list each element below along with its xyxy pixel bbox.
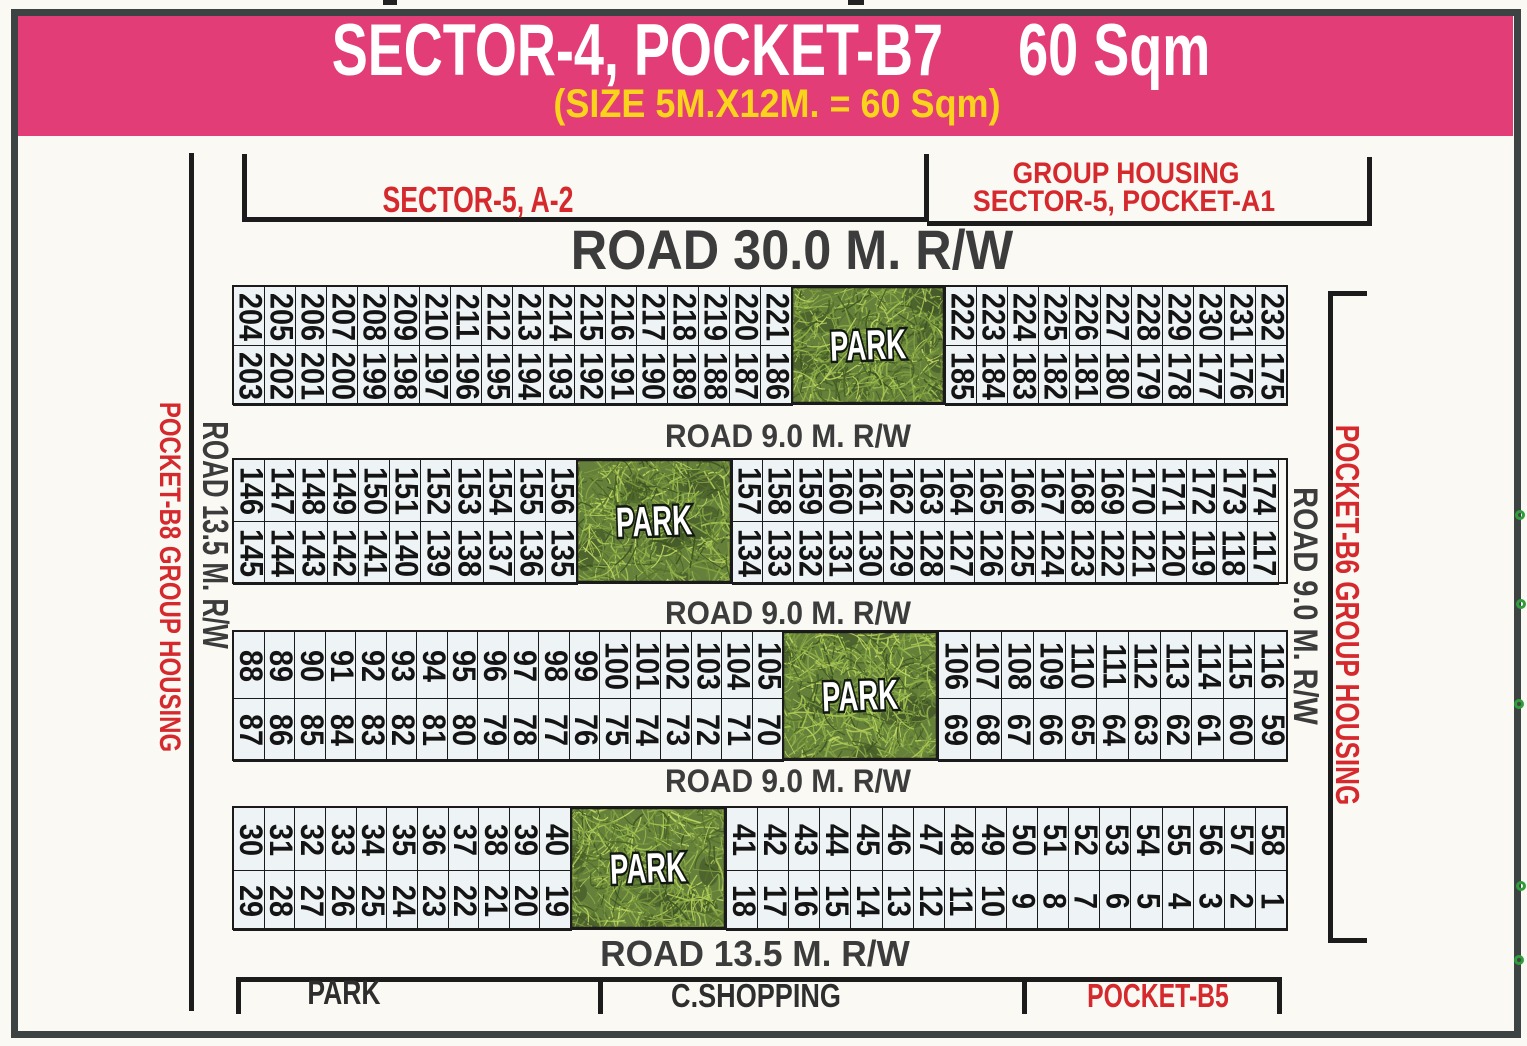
svg-text:PARK: PARK [615, 496, 693, 546]
svg-text:PARK: PARK [821, 671, 899, 721]
svg-text:PARK: PARK [609, 843, 687, 893]
svg-text:PARK: PARK [829, 320, 907, 370]
